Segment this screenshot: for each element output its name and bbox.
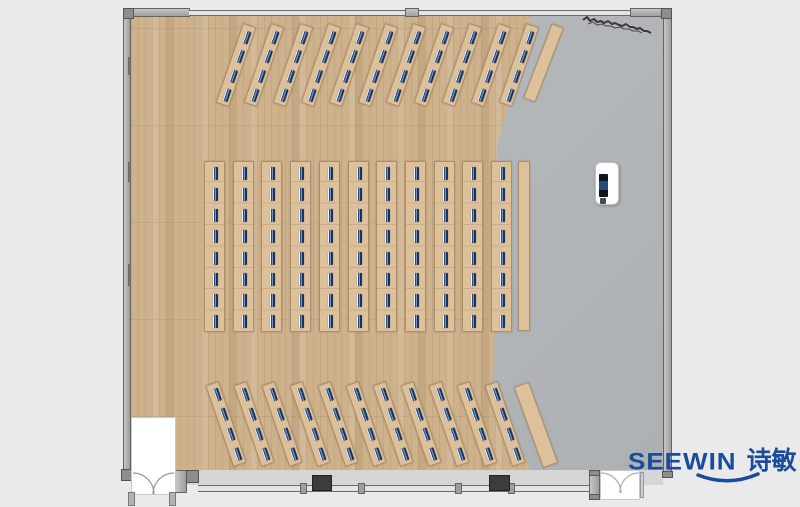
- seat-marker: [279, 88, 288, 102]
- seat-marker: [471, 230, 476, 243]
- floor-plan-canvas: SEEWIN 诗敏: [0, 0, 800, 507]
- seat-marker: [241, 388, 250, 402]
- desk-strip: [233, 161, 254, 332]
- wall-top-solid-left: [133, 8, 190, 17]
- seat-marker: [385, 167, 390, 180]
- structural-column: [312, 475, 332, 491]
- seat-marker: [213, 252, 218, 265]
- seat-marker: [242, 230, 247, 243]
- seat-marker: [325, 388, 334, 402]
- seat-marker: [471, 294, 476, 307]
- seat-marker: [385, 315, 390, 328]
- seat-marker: [385, 230, 390, 243]
- desk-strip: [319, 161, 340, 332]
- seat-marker: [269, 388, 278, 402]
- seat-marker: [251, 88, 260, 102]
- seat-marker: [385, 209, 390, 222]
- seat-marker: [414, 188, 419, 201]
- seat-marker: [357, 252, 362, 265]
- seat-marker: [349, 50, 358, 64]
- seat-marker: [345, 447, 354, 461]
- desk-strip: [462, 161, 483, 332]
- window-bottom: [198, 485, 590, 492]
- desk-strip: [376, 161, 397, 332]
- seat-marker: [270, 294, 275, 307]
- seat-marker: [436, 388, 445, 402]
- seat-marker: [308, 88, 317, 102]
- seat-marker: [526, 31, 535, 45]
- seat-marker: [293, 50, 302, 64]
- seat-marker: [227, 427, 236, 441]
- seat-marker: [328, 294, 333, 307]
- seat-marker: [422, 427, 431, 441]
- seat-marker: [471, 167, 476, 180]
- seat-marker: [471, 252, 476, 265]
- desk-strip: [434, 161, 455, 332]
- seat-marker: [380, 388, 389, 402]
- seat-marker: [299, 294, 304, 307]
- seat-marker: [261, 447, 270, 461]
- seat-marker: [399, 69, 408, 83]
- seat-marker: [415, 408, 424, 422]
- seat-marker: [500, 273, 505, 286]
- seat-marker: [364, 88, 373, 102]
- seat-marker: [456, 69, 465, 83]
- seat-marker: [236, 50, 245, 64]
- seat-marker: [443, 408, 452, 422]
- desk-groups-layer: [0, 0, 800, 507]
- seat-marker: [213, 388, 222, 402]
- seat-marker: [443, 315, 448, 328]
- seat-marker: [366, 427, 375, 441]
- seat-marker: [484, 69, 493, 83]
- seat-marker: [271, 31, 280, 45]
- seat-marker: [299, 167, 304, 180]
- seat-marker: [286, 69, 295, 83]
- seat-marker: [328, 273, 333, 286]
- seat-marker: [243, 31, 252, 45]
- seat-marker: [506, 427, 515, 441]
- seat-marker: [357, 230, 362, 243]
- door-jamb: [128, 492, 135, 506]
- window-top-right: [419, 10, 631, 16]
- seat-marker: [270, 230, 275, 243]
- seat-marker: [242, 294, 247, 307]
- seat-marker: [258, 69, 267, 83]
- window-top-left: [189, 10, 406, 16]
- wall-bottom-pier-cap: [186, 470, 199, 483]
- seat-marker: [377, 50, 386, 64]
- seat-marker: [213, 188, 218, 201]
- seat-marker: [385, 252, 390, 265]
- seat-marker: [427, 69, 436, 83]
- wall-joint: [128, 264, 131, 286]
- seat-marker: [270, 273, 275, 286]
- desk-strip: [290, 161, 311, 332]
- seat-marker: [328, 167, 333, 180]
- seat-marker: [443, 167, 448, 180]
- side-table: [518, 161, 530, 331]
- seat-marker: [500, 294, 505, 307]
- seat-marker: [357, 315, 362, 328]
- wall-joint: [128, 57, 131, 75]
- seat-marker: [276, 408, 285, 422]
- seat-marker: [477, 88, 486, 102]
- seat-marker: [220, 408, 229, 422]
- seat-marker: [500, 230, 505, 243]
- wall-joint: [128, 162, 131, 182]
- seat-marker: [512, 69, 521, 83]
- seat-marker: [328, 209, 333, 222]
- seat-marker: [270, 315, 275, 328]
- seat-marker: [213, 315, 218, 328]
- seat-marker: [385, 273, 390, 286]
- wall-corner-top-left: [123, 8, 134, 19]
- podium: [595, 162, 619, 205]
- wall-corner-top-right: [661, 8, 672, 19]
- seat-marker: [443, 273, 448, 286]
- seat-marker: [327, 31, 336, 45]
- seat-marker: [471, 408, 480, 422]
- seat-marker: [414, 209, 419, 222]
- seat-marker: [359, 408, 368, 422]
- seat-marker: [506, 88, 515, 102]
- seat-marker: [328, 315, 333, 328]
- seat-marker: [331, 408, 340, 422]
- seat-marker: [213, 273, 218, 286]
- seat-marker: [242, 273, 247, 286]
- seat-marker: [500, 188, 505, 201]
- structural-column: [489, 475, 510, 491]
- seat-marker: [299, 209, 304, 222]
- seat-marker: [282, 427, 291, 441]
- seat-marker: [406, 50, 415, 64]
- podium-base: [600, 198, 606, 204]
- seat-marker: [242, 188, 247, 201]
- seat-marker: [328, 252, 333, 265]
- seat-marker: [384, 31, 393, 45]
- desk-strip: [261, 161, 282, 332]
- seat-marker: [519, 50, 528, 64]
- seat-marker: [317, 447, 326, 461]
- seat-marker: [449, 88, 458, 102]
- seat-marker: [223, 88, 232, 102]
- seat-marker: [299, 252, 304, 265]
- seat-marker: [429, 447, 438, 461]
- seat-marker: [336, 88, 345, 102]
- desk-strip: [405, 161, 426, 332]
- seat-marker: [242, 209, 247, 222]
- seat-marker: [357, 273, 362, 286]
- smile-icon: [694, 472, 794, 488]
- seat-marker: [213, 209, 218, 222]
- seat-marker: [471, 188, 476, 201]
- seat-marker: [357, 294, 362, 307]
- seat-marker: [270, 167, 275, 180]
- seat-marker: [450, 427, 459, 441]
- seat-marker: [485, 447, 494, 461]
- seat-marker: [443, 230, 448, 243]
- seat-marker: [299, 315, 304, 328]
- seat-marker: [371, 69, 380, 83]
- brand-wordmark-latin: SEEWIN: [628, 447, 737, 475]
- seat-marker: [213, 167, 218, 180]
- door-post-cap: [589, 470, 600, 476]
- seat-marker: [264, 50, 273, 64]
- seat-marker: [213, 230, 218, 243]
- seat-marker: [491, 50, 500, 64]
- seat-marker: [478, 427, 487, 441]
- seat-marker: [464, 388, 473, 402]
- seat-marker: [408, 388, 417, 402]
- seat-marker: [321, 50, 330, 64]
- seat-marker: [270, 252, 275, 265]
- seat-marker: [462, 50, 471, 64]
- seat-marker: [457, 447, 466, 461]
- seat-marker: [500, 167, 505, 180]
- seat-marker: [414, 294, 419, 307]
- seat-marker: [443, 294, 448, 307]
- seat-marker: [414, 167, 419, 180]
- seat-marker: [248, 408, 257, 422]
- seat-marker: [414, 273, 419, 286]
- seat-marker: [328, 230, 333, 243]
- wall-right: [663, 16, 672, 472]
- seat-marker: [401, 447, 410, 461]
- seat-marker: [492, 388, 501, 402]
- seat-marker: [289, 447, 298, 461]
- podium-screen-icon: [599, 174, 608, 197]
- seat-marker: [497, 31, 506, 45]
- seat-marker: [471, 315, 476, 328]
- seat-marker: [353, 388, 362, 402]
- seat-marker: [394, 427, 403, 441]
- seat-marker: [414, 315, 419, 328]
- door-post-cap: [589, 494, 600, 500]
- seat-marker: [357, 188, 362, 201]
- seat-marker: [471, 209, 476, 222]
- seat-marker: [310, 427, 319, 441]
- wall-left: [123, 16, 131, 470]
- brand-logo: SEEWIN 诗敏: [628, 446, 797, 476]
- seat-marker: [387, 408, 396, 422]
- seat-marker: [392, 88, 401, 102]
- seat-marker: [299, 31, 308, 45]
- desk-strip: [348, 161, 369, 332]
- seat-marker: [299, 188, 304, 201]
- wall-bottom-zone: [131, 470, 663, 485]
- window-mullion: [300, 483, 307, 494]
- seat-marker: [443, 209, 448, 222]
- seat-marker: [414, 230, 419, 243]
- seat-marker: [357, 209, 362, 222]
- seat-marker: [234, 447, 243, 461]
- seat-marker: [242, 167, 247, 180]
- seat-marker: [328, 188, 333, 201]
- seat-marker: [434, 50, 443, 64]
- seat-marker: [270, 209, 275, 222]
- seat-marker: [299, 230, 304, 243]
- seat-marker: [342, 69, 351, 83]
- wall-top-solid-right: [630, 8, 662, 17]
- seat-marker: [469, 31, 478, 45]
- seat-marker: [242, 315, 247, 328]
- seat-marker: [255, 427, 264, 441]
- desk-strip: [204, 161, 225, 332]
- door-jamb: [169, 492, 176, 506]
- seat-marker: [304, 408, 313, 422]
- seat-marker: [356, 31, 365, 45]
- seat-marker: [338, 427, 347, 441]
- seat-marker: [213, 294, 218, 307]
- seat-marker: [373, 447, 382, 461]
- seat-marker: [299, 273, 304, 286]
- seat-marker: [229, 69, 238, 83]
- seat-marker: [297, 388, 306, 402]
- seat-marker: [500, 209, 505, 222]
- seat-marker: [441, 31, 450, 45]
- seat-marker: [414, 252, 419, 265]
- desk-strip: [491, 161, 512, 332]
- seat-marker: [500, 315, 505, 328]
- seat-marker: [242, 252, 247, 265]
- seat-marker: [412, 31, 421, 45]
- window-mullion: [358, 483, 365, 494]
- window-mullion: [455, 483, 462, 494]
- seat-marker: [443, 188, 448, 201]
- seat-marker: [499, 408, 508, 422]
- seat-marker: [471, 273, 476, 286]
- wall-top-pier: [405, 8, 419, 17]
- seat-marker: [270, 188, 275, 201]
- seat-marker: [314, 69, 323, 83]
- seat-marker: [513, 447, 522, 461]
- seat-marker: [385, 294, 390, 307]
- seat-marker: [443, 252, 448, 265]
- seat-marker: [421, 88, 430, 102]
- entry-vestibule: [131, 417, 176, 495]
- seat-marker: [500, 252, 505, 265]
- seat-marker: [357, 167, 362, 180]
- seat-marker: [385, 188, 390, 201]
